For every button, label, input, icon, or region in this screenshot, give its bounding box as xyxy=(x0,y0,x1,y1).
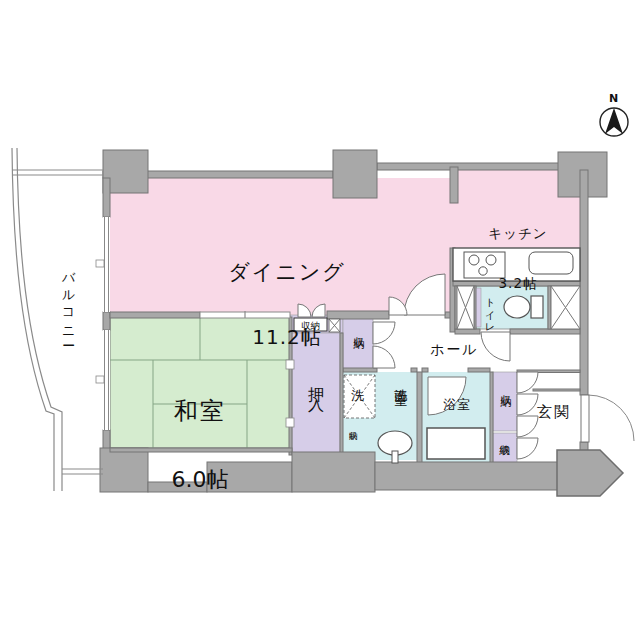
window-latch-icon xyxy=(96,376,104,383)
pillar-top-middle xyxy=(333,150,377,198)
kitchen-label: キッチン 3.2帖 xyxy=(458,191,578,326)
japanese-room-label: 和室 6.0帖 xyxy=(110,356,290,534)
wall-bottom xyxy=(375,462,560,490)
entrance-label: 玄関 xyxy=(537,403,571,422)
kitchen-name: キッチン xyxy=(458,225,578,242)
storage-label-entrance-lower: 収納 xyxy=(498,436,511,438)
hall-label: ホール xyxy=(430,341,479,359)
kitchen-size: 3.2帖 xyxy=(458,275,578,292)
balcony-label: バルコニー xyxy=(60,263,76,342)
storage-label-hall: 収納 xyxy=(351,328,365,332)
door-toilet xyxy=(481,332,510,361)
dining-name: ダイニング xyxy=(187,259,387,285)
storage-label-entrance-upper: 収納 xyxy=(498,386,512,390)
washer-label: 洗 xyxy=(351,388,364,404)
door-entrance-closet-4 xyxy=(517,438,538,459)
japanese-room-size: 6.0帖 xyxy=(110,466,290,494)
entrance-door-leaf xyxy=(581,395,589,442)
washroom-label: 洗面室 xyxy=(392,378,408,384)
storage-label-dining: 収納 xyxy=(294,320,327,332)
basin-tap-icon xyxy=(392,451,398,463)
wall-kitchen-stub xyxy=(450,167,458,203)
north-label: N xyxy=(609,92,618,106)
toilet-label: トイレ xyxy=(483,291,496,328)
window-latch-icon xyxy=(96,260,104,267)
compass-icon xyxy=(600,108,628,136)
wall-top-right xyxy=(377,163,580,170)
entrance-arrow-icon xyxy=(557,450,623,496)
bathroom-label: 浴室 xyxy=(443,397,471,413)
entrance-door-swing xyxy=(588,395,634,441)
balcony-outline xyxy=(12,148,103,491)
floorplan-canvas: ダイニング 11.2帖 キッチン 3.2帖 和室 6.0帖 バルコニー ホール … xyxy=(0,0,640,640)
oshiire-label: 押入 xyxy=(306,374,326,392)
door-entrance-closet-2 xyxy=(517,394,538,415)
wall-right xyxy=(580,170,588,395)
storage-label-washroom: 収納 xyxy=(348,424,359,426)
door-entrance-closet-3 xyxy=(517,416,538,437)
japanese-room-name: 和室 xyxy=(110,396,290,426)
closet-entrance-upper xyxy=(493,372,517,431)
bathtub-icon xyxy=(427,428,485,459)
